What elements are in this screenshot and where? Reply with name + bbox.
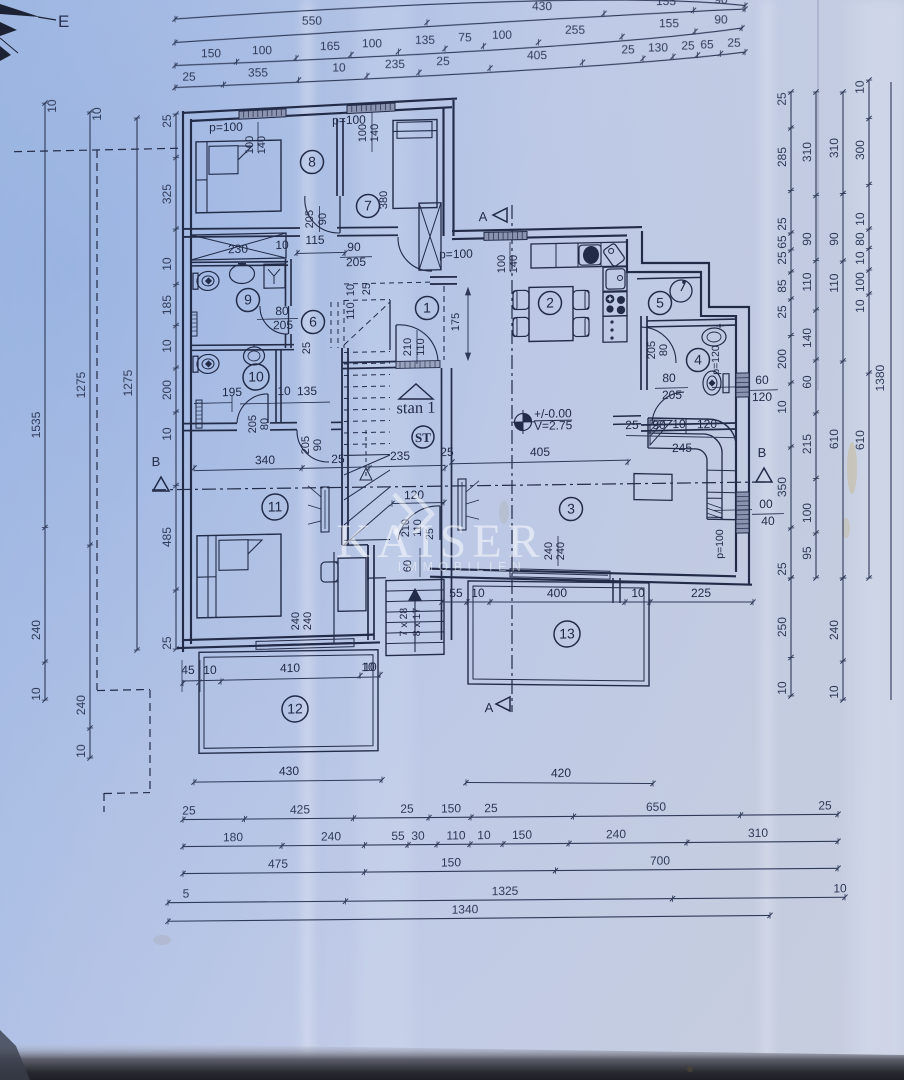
- svg-text:405: 405: [527, 48, 547, 62]
- svg-text:25: 25: [436, 54, 450, 68]
- svg-text:8 x 17: 8 x 17: [411, 607, 423, 636]
- svg-text:155: 155: [659, 16, 679, 30]
- svg-text:110: 110: [345, 302, 357, 320]
- svg-text:355: 355: [248, 66, 268, 80]
- svg-text:10: 10: [361, 660, 375, 674]
- svg-text:310: 310: [748, 826, 768, 840]
- svg-text:IMMOBILIEN: IMMOBILIEN: [398, 560, 527, 574]
- svg-text:110: 110: [800, 272, 814, 292]
- svg-text:205: 205: [273, 318, 293, 332]
- svg-text:110: 110: [446, 828, 465, 842]
- svg-text:25: 25: [182, 803, 196, 817]
- svg-text:9: 9: [244, 291, 252, 307]
- svg-text:100: 100: [244, 136, 256, 155]
- svg-text:75: 75: [458, 30, 472, 44]
- svg-text:A: A: [485, 700, 494, 715]
- svg-text:25: 25: [775, 305, 789, 319]
- svg-text:205: 205: [646, 341, 658, 360]
- svg-text:10: 10: [160, 257, 174, 271]
- svg-text:10: 10: [45, 99, 59, 113]
- svg-text:10: 10: [74, 744, 88, 758]
- svg-text:25: 25: [727, 36, 741, 50]
- svg-text:140: 140: [369, 124, 381, 143]
- svg-text:1: 1: [423, 299, 431, 315]
- svg-text:25: 25: [361, 283, 373, 296]
- svg-text:10: 10: [853, 212, 867, 226]
- svg-text:95: 95: [800, 546, 814, 560]
- svg-text:100: 100: [492, 28, 512, 42]
- svg-text:25: 25: [160, 114, 174, 128]
- svg-text:100: 100: [496, 255, 508, 274]
- svg-text:425: 425: [290, 802, 310, 816]
- svg-text:240: 240: [29, 620, 43, 641]
- svg-text:65: 65: [775, 235, 789, 249]
- svg-text:7 x 28: 7 x 28: [398, 608, 410, 637]
- svg-text:180: 180: [223, 830, 243, 844]
- svg-text:80: 80: [853, 232, 867, 246]
- svg-text:165: 165: [320, 39, 340, 53]
- svg-text:420: 420: [551, 766, 571, 780]
- svg-text:10: 10: [248, 368, 264, 384]
- svg-text:80: 80: [658, 344, 670, 357]
- svg-text:90: 90: [312, 439, 324, 452]
- svg-text:10: 10: [160, 339, 174, 353]
- svg-text:10: 10: [631, 586, 645, 600]
- svg-text:10: 10: [853, 80, 867, 94]
- svg-text:10: 10: [827, 685, 841, 699]
- svg-text:25: 25: [160, 636, 174, 650]
- svg-text:340: 340: [255, 453, 275, 467]
- svg-text:240: 240: [302, 612, 314, 631]
- svg-text:240: 240: [321, 829, 341, 843]
- svg-text:100: 100: [357, 124, 369, 143]
- svg-text:A: A: [479, 209, 488, 224]
- svg-text:610: 610: [853, 430, 867, 451]
- svg-text:25: 25: [440, 445, 454, 459]
- svg-text:205: 205: [304, 210, 316, 229]
- svg-text:45: 45: [181, 663, 195, 677]
- svg-text:610: 610: [827, 429, 841, 450]
- svg-text:7: 7: [364, 197, 372, 213]
- svg-text:B: B: [152, 454, 161, 469]
- svg-text:300: 300: [853, 140, 867, 161]
- svg-text:00: 00: [759, 497, 773, 511]
- svg-text:stan 1: stan 1: [397, 398, 436, 418]
- svg-text:100: 100: [362, 36, 382, 50]
- svg-text:90: 90: [652, 418, 666, 432]
- svg-text:245: 245: [672, 441, 692, 455]
- svg-text:240: 240: [290, 612, 302, 631]
- svg-text:200: 200: [775, 349, 789, 370]
- svg-text:13: 13: [559, 625, 575, 641]
- svg-text:185: 185: [160, 295, 174, 316]
- svg-text:60: 60: [800, 375, 814, 389]
- svg-text:80: 80: [259, 418, 271, 431]
- svg-text:475: 475: [268, 857, 288, 871]
- svg-text:60: 60: [755, 373, 769, 387]
- svg-text:25: 25: [301, 342, 313, 355]
- svg-text:120: 120: [697, 417, 717, 431]
- svg-text:140: 140: [800, 328, 814, 349]
- svg-text:1380: 1380: [873, 364, 887, 391]
- svg-text:3: 3: [567, 500, 575, 516]
- svg-text:130: 130: [648, 41, 668, 55]
- svg-text:410: 410: [280, 661, 300, 675]
- svg-text:100: 100: [252, 43, 272, 57]
- svg-text:135: 135: [297, 384, 317, 398]
- svg-text:10: 10: [345, 284, 357, 297]
- svg-text:p=100: p=100: [439, 247, 473, 262]
- svg-text:90: 90: [714, 0, 728, 7]
- svg-text:150: 150: [512, 828, 532, 842]
- svg-text:25: 25: [681, 39, 695, 53]
- svg-text:25: 25: [775, 562, 789, 576]
- svg-text:90: 90: [827, 232, 841, 246]
- svg-text:10: 10: [672, 417, 686, 431]
- svg-text:155: 155: [656, 0, 676, 8]
- svg-text:10: 10: [833, 881, 847, 895]
- svg-text:10: 10: [203, 663, 217, 677]
- svg-text:250: 250: [775, 617, 789, 638]
- svg-text:p=100: p=100: [714, 529, 726, 559]
- svg-text:E: E: [58, 12, 69, 31]
- svg-text:120: 120: [752, 390, 772, 404]
- svg-text:25: 25: [621, 42, 635, 56]
- svg-text:p=100: p=100: [209, 120, 243, 135]
- svg-text:110: 110: [827, 273, 841, 293]
- svg-text:25: 25: [775, 251, 789, 265]
- svg-text:25: 25: [775, 217, 789, 231]
- svg-text:380: 380: [378, 191, 390, 210]
- svg-text:550: 550: [302, 14, 322, 28]
- svg-text:100: 100: [800, 503, 814, 524]
- svg-text:115: 115: [305, 233, 324, 247]
- svg-text:255: 255: [565, 23, 585, 37]
- svg-text:10: 10: [853, 251, 867, 265]
- svg-text:350: 350: [775, 477, 789, 498]
- svg-text:650: 650: [646, 800, 666, 814]
- svg-text:V=2.75: V=2.75: [534, 418, 573, 433]
- svg-text:12: 12: [287, 700, 303, 716]
- svg-text:10: 10: [160, 427, 174, 441]
- svg-text:150: 150: [441, 855, 461, 869]
- svg-text:40: 40: [761, 514, 775, 528]
- svg-text:100: 100: [853, 272, 867, 293]
- svg-text:55: 55: [449, 586, 463, 600]
- svg-text:225: 225: [691, 586, 711, 600]
- svg-text:240: 240: [74, 695, 88, 716]
- svg-text:5: 5: [183, 887, 190, 901]
- svg-text:175: 175: [450, 313, 462, 332]
- svg-text:240: 240: [555, 542, 567, 561]
- svg-text:10: 10: [90, 107, 104, 121]
- svg-text:1535: 1535: [29, 411, 43, 438]
- svg-text:ST: ST: [415, 430, 431, 445]
- svg-text:400: 400: [547, 586, 567, 600]
- svg-text:10: 10: [471, 586, 485, 600]
- svg-text:485: 485: [160, 527, 174, 548]
- svg-text:430: 430: [279, 764, 299, 778]
- svg-text:235: 235: [390, 449, 410, 463]
- svg-text:25: 25: [182, 70, 196, 84]
- svg-text:10: 10: [332, 61, 346, 75]
- svg-text:25: 25: [400, 802, 414, 816]
- svg-text:80: 80: [662, 371, 676, 385]
- svg-text:4: 4: [694, 351, 702, 367]
- svg-text:285: 285: [775, 147, 789, 168]
- svg-text:10: 10: [853, 299, 867, 313]
- svg-text:700: 700: [650, 854, 670, 868]
- svg-text:25: 25: [625, 418, 639, 432]
- svg-text:55: 55: [391, 829, 405, 843]
- svg-text:10: 10: [275, 238, 289, 252]
- svg-text:205: 205: [662, 388, 682, 402]
- svg-text:215: 215: [800, 434, 814, 455]
- svg-text:1325: 1325: [492, 884, 519, 899]
- svg-text:1340: 1340: [452, 902, 479, 917]
- svg-text:2: 2: [546, 294, 554, 310]
- svg-text:10: 10: [775, 400, 789, 414]
- svg-text:90: 90: [714, 13, 728, 27]
- svg-text:1275: 1275: [121, 369, 135, 396]
- svg-text:90: 90: [347, 240, 361, 254]
- svg-text:240: 240: [606, 827, 626, 841]
- svg-text:8: 8: [308, 153, 316, 169]
- svg-text:430: 430: [532, 0, 552, 13]
- svg-text:p=120: p=120: [710, 345, 722, 375]
- svg-text:1275: 1275: [74, 371, 88, 398]
- svg-text:210: 210: [402, 338, 414, 357]
- svg-text:25: 25: [484, 801, 498, 815]
- svg-text:6: 6: [309, 313, 317, 329]
- svg-text:30: 30: [411, 829, 425, 843]
- svg-text:25: 25: [818, 798, 832, 812]
- svg-text:205: 205: [300, 436, 312, 455]
- svg-text:5: 5: [656, 294, 664, 310]
- svg-text:150: 150: [201, 46, 221, 60]
- svg-text:200: 200: [160, 380, 174, 401]
- svg-text:310: 310: [827, 138, 841, 159]
- svg-text:230: 230: [228, 242, 248, 256]
- svg-text:405: 405: [530, 445, 550, 459]
- svg-text:310: 310: [800, 142, 814, 163]
- svg-text:B: B: [758, 445, 767, 460]
- svg-text:150: 150: [441, 801, 461, 815]
- svg-text:25: 25: [775, 92, 789, 106]
- svg-text:240: 240: [827, 620, 841, 641]
- svg-text:80: 80: [275, 304, 289, 318]
- svg-text:205: 205: [247, 415, 259, 434]
- svg-text:135: 135: [415, 33, 435, 47]
- svg-text:85: 85: [775, 279, 789, 293]
- svg-text:11: 11: [268, 498, 283, 514]
- svg-text:25: 25: [331, 452, 345, 466]
- svg-text:10: 10: [477, 828, 491, 842]
- svg-text:235: 235: [385, 57, 405, 71]
- svg-text:90: 90: [317, 213, 329, 226]
- svg-text:10: 10: [775, 681, 789, 695]
- svg-text:10: 10: [29, 687, 43, 701]
- svg-text:10: 10: [277, 384, 291, 398]
- svg-text:325: 325: [160, 184, 174, 205]
- svg-text:65: 65: [700, 37, 714, 51]
- svg-text:90: 90: [800, 232, 814, 246]
